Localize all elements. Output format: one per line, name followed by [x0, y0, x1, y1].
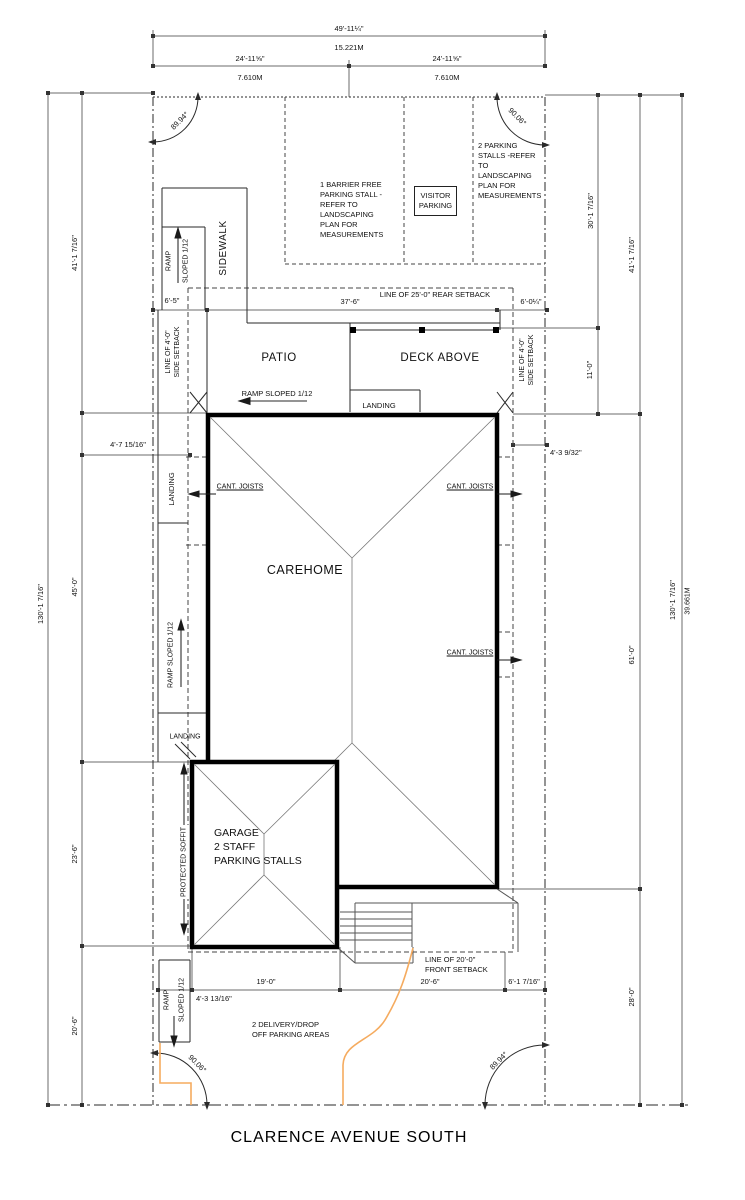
dim-top-overall-ft: 49'-11¼": [335, 24, 364, 34]
dim-bottom-seg4: 6'-1 7/16": [508, 977, 540, 987]
carehome-label: CAREHOME: [267, 565, 343, 575]
angle-arcs: [153, 97, 545, 1105]
ramp-bottom-label: RAMP: [163, 990, 172, 1010]
street-name: CLARENCE AVENUE SOUTH: [231, 1133, 468, 1143]
site-plan: 49'-11¼" 15.221M 24'-11⅝" 7.610M 24'-11⅝…: [0, 0, 745, 1200]
dim-right-overall-ft: 130'-1 7/16": [668, 580, 678, 620]
cant-joists-right2-label: CANT. JOISTS: [447, 649, 494, 658]
dim-rear-mid: 37'-6": [340, 297, 359, 307]
dim-rear-right: 6'-0¼": [520, 297, 541, 307]
cant-joists-right1-label: CANT. JOISTS: [447, 483, 494, 492]
note-two-parking-stalls: 2 PARKING STALLS -REFER TO LANDSCAPING P…: [478, 141, 550, 201]
visitor-parking-label: VISITOR PARKING: [419, 191, 452, 211]
patio-label: PATIO: [261, 353, 296, 363]
dim-right-seg1: 30'-1 7/16": [586, 193, 596, 229]
garage-label: GARAGE 2 STAFF PARKING STALLS: [214, 826, 302, 868]
delivery-parking-note: 2 DELIVERY/DROP OFF PARKING AREAS: [252, 1020, 329, 1040]
dim-right-seg2: 41'-1 7/16": [627, 237, 637, 273]
dim-left-seg4: 20'-6": [70, 1016, 80, 1035]
landing-left-label: LANDING: [167, 472, 177, 505]
visitor-parking-box: VISITOR PARKING: [414, 186, 457, 216]
property-lines: [48, 97, 688, 1105]
side-setback-left-label: LINE OF 4'-0" SIDE SETBACK: [164, 327, 182, 378]
ramp-top-label: RAMP: [165, 251, 174, 271]
landing-left2-label: LANDING: [169, 733, 200, 742]
dim-rear-left: 6'-5": [165, 296, 180, 306]
ramp-bottom-slope-label: SLOPED 1/12: [178, 978, 187, 1022]
dim-bottom-seg2: 19'-0": [256, 977, 275, 987]
protected-soffit-label: PROTECTED SOFFIT: [180, 825, 189, 899]
dim-right-offset: 4'-3 9/32": [550, 448, 582, 458]
dim-top-half-right-m: 7.610M: [434, 73, 459, 83]
dim-left-overall: 130'-1 7/16": [36, 584, 46, 624]
dim-top-half-right-ft: 24'-11⅝": [433, 54, 462, 64]
dim-right-seg3: 11'-0": [585, 361, 595, 380]
dim-right-seg4: 61'-0": [627, 645, 637, 664]
side-setback-right-label: LINE OF 4'-0" SIDE SETBACK: [518, 335, 536, 386]
rear-setback-label: LINE OF 25'-0" REAR SETBACK: [380, 290, 490, 300]
sidewalk-label: SIDEWALK: [219, 220, 229, 275]
note-barrier-free-stall: 1 BARRIER FREE PARKING STALL - REFER TO …: [320, 180, 400, 240]
dim-left-seg2: 45'-0": [70, 577, 80, 596]
dim-left-offset: 4'-7 15/16": [110, 440, 146, 450]
front-setback-label: LINE OF 20'-0" FRONT SETBACK: [425, 955, 488, 975]
dim-right-seg5: 28'-0": [627, 987, 637, 1006]
dim-left-seg1: 41'-1 7/16": [70, 235, 80, 271]
ramp-left-label: RAMP SLOPED 1/12: [167, 622, 176, 688]
cant-joists-left-label: CANT. JOISTS: [217, 483, 264, 492]
landing-patio-label: LANDING: [362, 401, 395, 411]
dim-left-seg3: 23'-6": [70, 844, 80, 863]
dim-right-overall-m: 39.661M: [684, 587, 693, 614]
dim-bottom-seg3: 20'-6": [420, 977, 439, 987]
ramp-top-slope-label: SLOPED 1/12: [182, 239, 191, 283]
dim-top-half-left-m: 7.610M: [237, 73, 262, 83]
ramp-patio-label: RAMP SLOPED 1/12: [242, 389, 313, 399]
dim-top-overall-m: 15.221M: [334, 43, 363, 53]
dim-top-half-left-ft: 24'-11⅝": [236, 54, 265, 64]
deck-above-label: DECK ABOVE: [400, 353, 479, 363]
dim-bottom-seg1: 4'-3 13/16": [196, 994, 232, 1004]
